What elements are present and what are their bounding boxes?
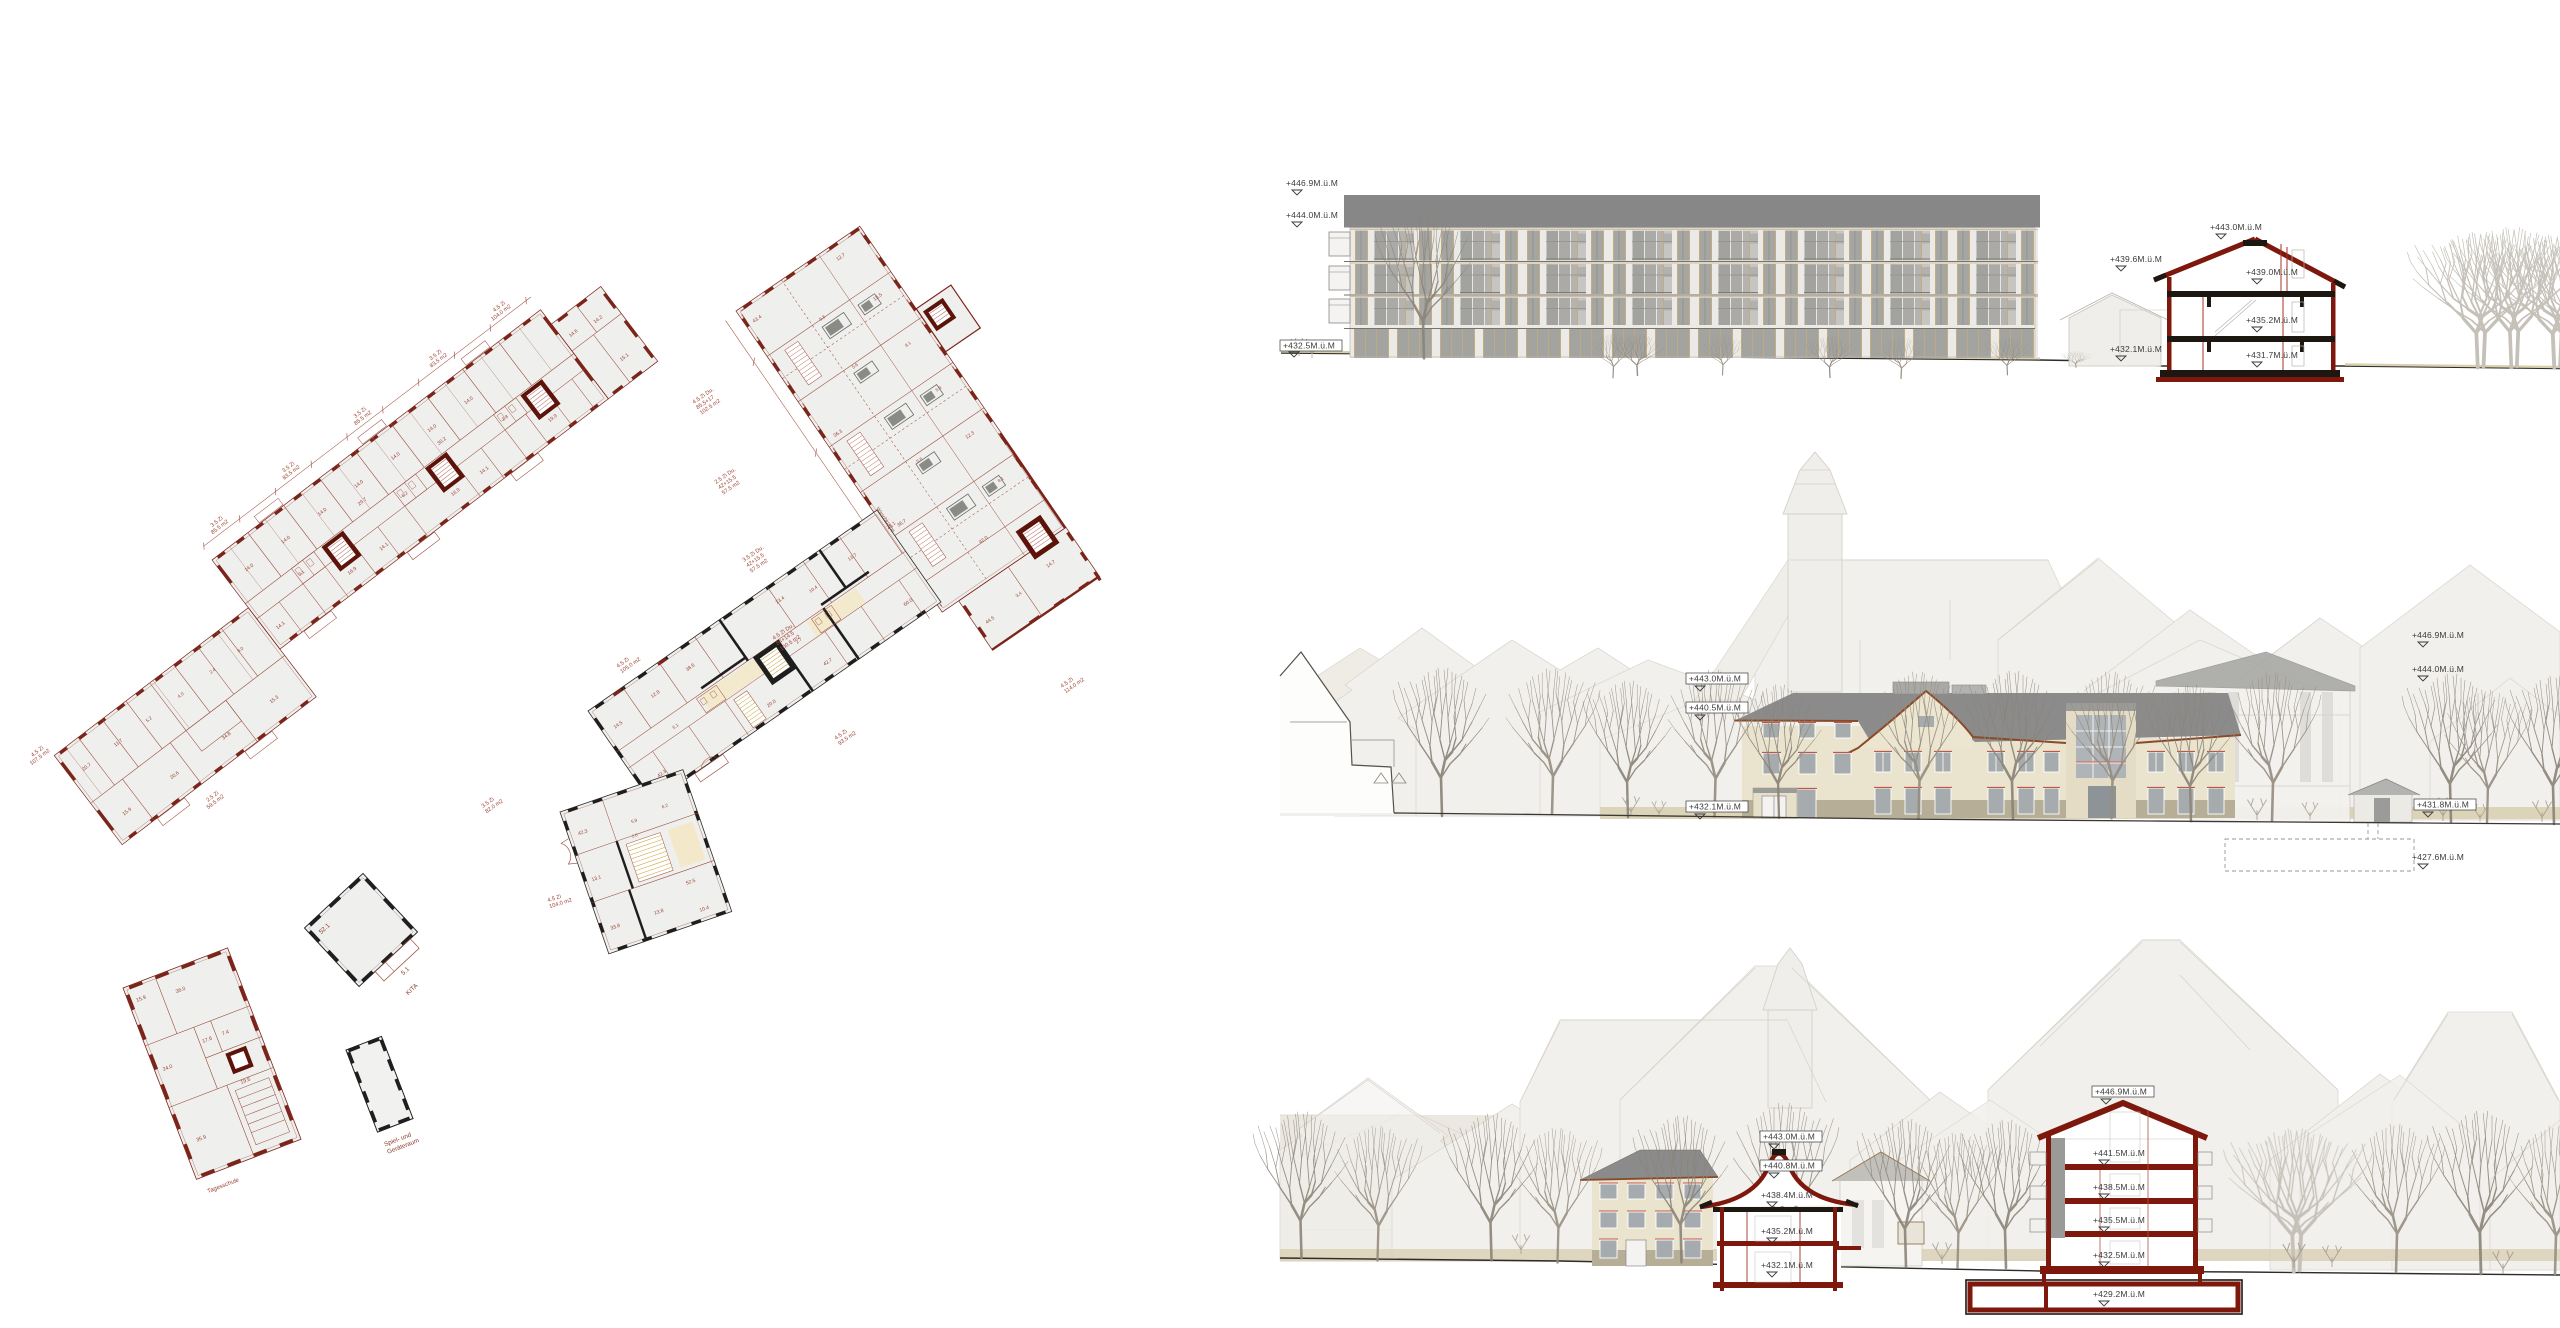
- svg-text:+438.5M.ü.M: +438.5M.ü.M: [2093, 1182, 2145, 1192]
- svg-text:+432.1M.ü.M: +432.1M.ü.M: [2110, 344, 2162, 354]
- svg-text:+444.0M.ü.M: +444.0M.ü.M: [1286, 210, 1338, 220]
- svg-text:+435.5M.ü.M: +435.5M.ü.M: [2093, 1215, 2145, 1225]
- svg-text:+446.9M.ü.M: +446.9M.ü.M: [2095, 1087, 2147, 1097]
- svg-text:+444.0M.ü.M: +444.0M.ü.M: [2412, 664, 2464, 674]
- svg-text:+439.6M.ü.M: +439.6M.ü.M: [2110, 254, 2162, 264]
- svg-text:+427.6M.ü.M: +427.6M.ü.M: [2412, 852, 2464, 862]
- svg-text:+432.1M.ü.M: +432.1M.ü.M: [1761, 1260, 1813, 1270]
- svg-text:+438.4M.ü.M: +438.4M.ü.M: [1761, 1190, 1813, 1200]
- svg-text:+435.2M.ü.M: +435.2M.ü.M: [1761, 1226, 1813, 1236]
- svg-text:+446.9M.ü.M: +446.9M.ü.M: [2412, 630, 2464, 640]
- svg-text:+431.7M.ü.M: +431.7M.ü.M: [2246, 350, 2298, 360]
- svg-text:+429.2M.ü.M: +429.2M.ü.M: [2093, 1289, 2145, 1299]
- svg-text:+432.5M.ü.M: +432.5M.ü.M: [1283, 341, 1335, 351]
- svg-text:+432.1M.ü.M: +432.1M.ü.M: [1689, 802, 1741, 812]
- svg-text:+443.0M.ü.M: +443.0M.ü.M: [2210, 222, 2262, 232]
- svg-text:+441.5M.ü.M: +441.5M.ü.M: [2093, 1148, 2145, 1158]
- svg-text:+431.8M.ü.M: +431.8M.ü.M: [2417, 800, 2469, 810]
- svg-text:+439.0M.ü.M: +439.0M.ü.M: [2246, 267, 2298, 277]
- svg-text:+440.8M.ü.M: +440.8M.ü.M: [1763, 1161, 1815, 1171]
- svg-text:+446.9M.ü.M: +446.9M.ü.M: [1286, 178, 1338, 188]
- svg-text:+443.0M.ü.M: +443.0M.ü.M: [1763, 1132, 1815, 1142]
- svg-text:+435.2M.ü.M: +435.2M.ü.M: [2246, 315, 2298, 325]
- svg-text:+440.5M.ü.M: +440.5M.ü.M: [1689, 703, 1741, 713]
- svg-text:+432.5M.ü.M: +432.5M.ü.M: [2093, 1250, 2145, 1260]
- svg-text:+443.0M.ü.M: +443.0M.ü.M: [1689, 674, 1741, 684]
